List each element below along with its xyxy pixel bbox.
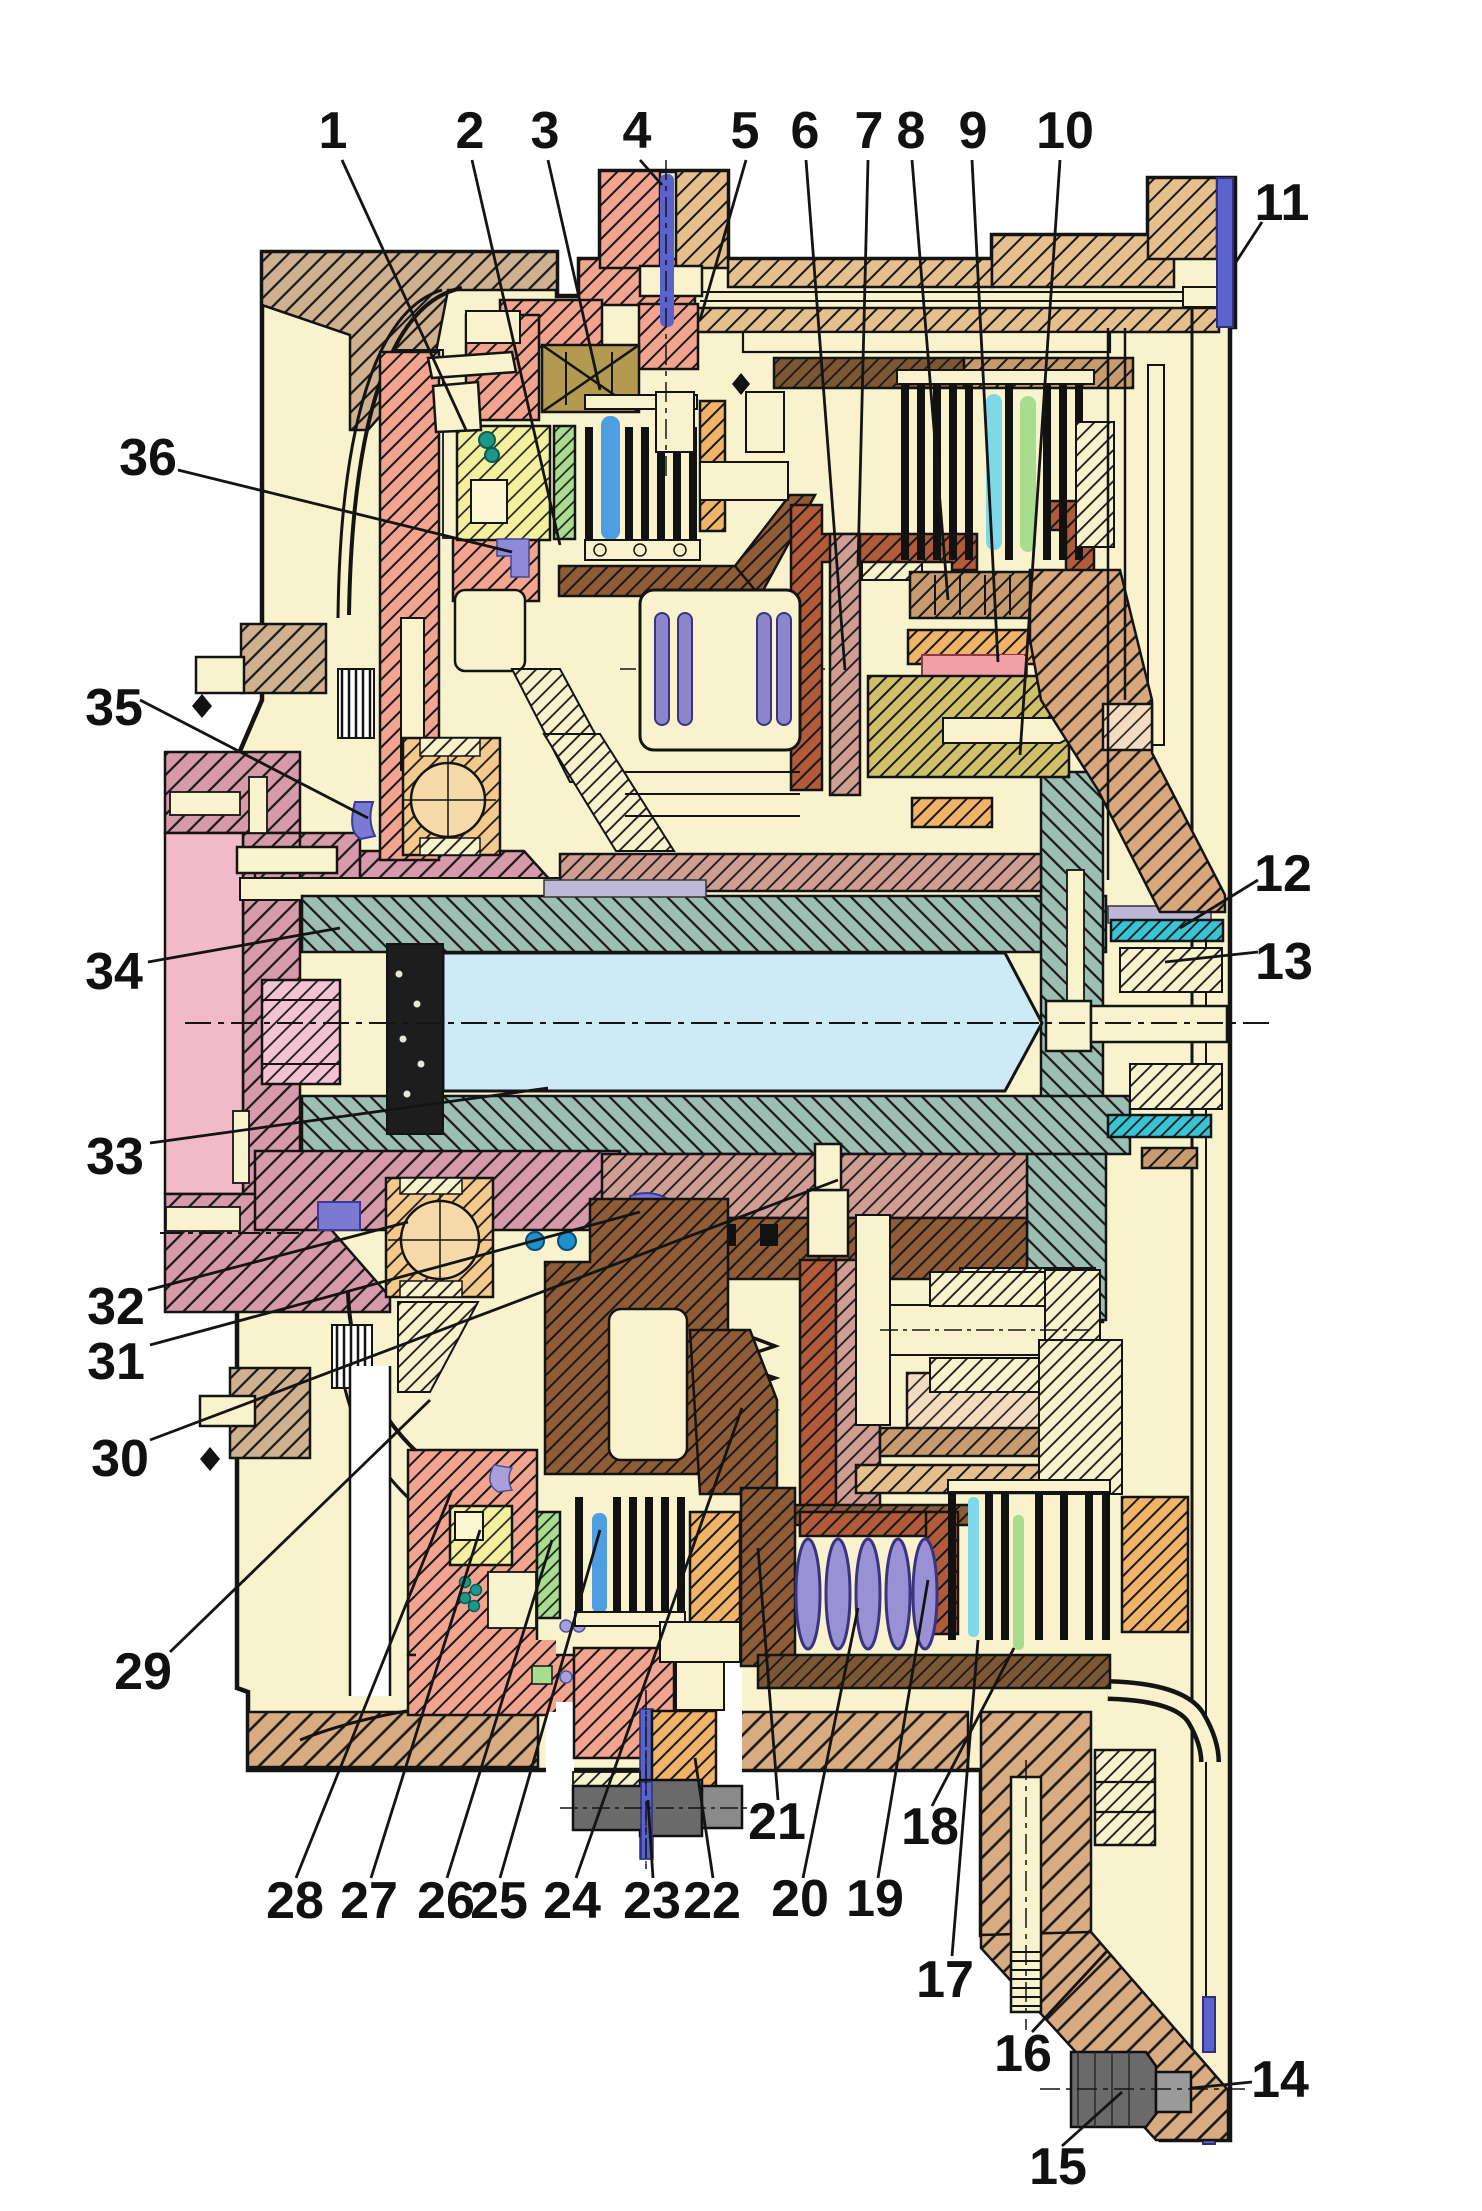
svg-text:20: 20 (771, 1870, 829, 1928)
svg-text:36: 36 (119, 429, 177, 487)
svg-text:32: 32 (87, 1278, 145, 1336)
svg-text:13: 13 (1255, 933, 1313, 991)
svg-text:6: 6 (791, 102, 820, 160)
svg-text:16: 16 (994, 2025, 1052, 2083)
svg-text:21: 21 (748, 1793, 806, 1851)
svg-text:19: 19 (846, 1870, 904, 1928)
svg-text:5: 5 (731, 102, 760, 160)
svg-text:17: 17 (916, 1951, 974, 2009)
svg-text:15: 15 (1029, 2138, 1087, 2196)
svg-text:2: 2 (456, 102, 485, 160)
svg-text:23: 23 (623, 1872, 681, 1930)
svg-text:7: 7 (855, 102, 884, 160)
svg-text:25: 25 (470, 1872, 528, 1930)
svg-text:9: 9 (959, 102, 988, 160)
svg-text:34: 34 (85, 943, 143, 1001)
svg-text:30: 30 (91, 1430, 149, 1488)
svg-text:31: 31 (87, 1333, 145, 1391)
svg-text:27: 27 (340, 1872, 398, 1930)
svg-text:3: 3 (531, 102, 560, 160)
svg-text:18: 18 (901, 1798, 959, 1856)
svg-text:1: 1 (319, 102, 348, 160)
svg-text:22: 22 (683, 1872, 741, 1930)
svg-text:26: 26 (417, 1872, 475, 1930)
svg-text:29: 29 (114, 1643, 172, 1701)
svg-text:4: 4 (623, 102, 652, 160)
svg-text:11: 11 (1255, 174, 1310, 232)
svg-text:24: 24 (543, 1872, 601, 1930)
svg-text:8: 8 (897, 102, 926, 160)
svg-text:12: 12 (1254, 845, 1312, 903)
svg-text:14: 14 (1251, 2051, 1309, 2109)
svg-text:35: 35 (85, 679, 143, 737)
svg-text:33: 33 (86, 1128, 144, 1186)
svg-text:28: 28 (266, 1872, 324, 1930)
svg-text:10: 10 (1036, 102, 1094, 160)
